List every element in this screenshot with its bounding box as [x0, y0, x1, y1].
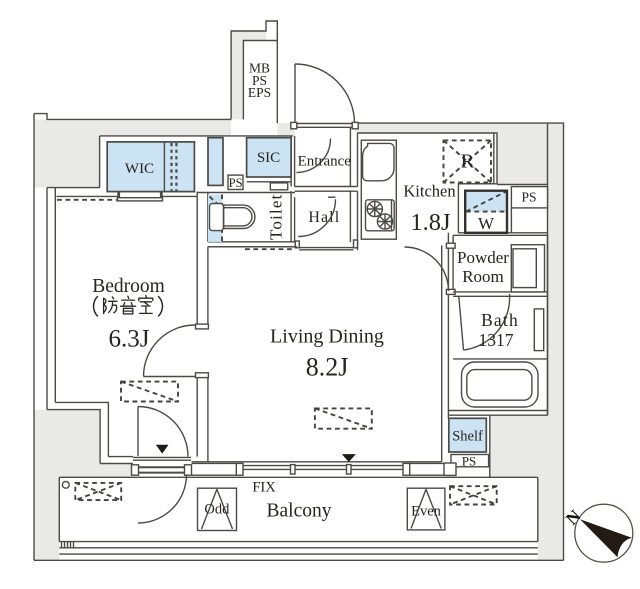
svg-text:Balcony: Balcony	[267, 501, 332, 522]
svg-text:Kitchen: Kitchen	[403, 182, 455, 201]
svg-text:Room: Room	[462, 267, 504, 286]
svg-text:Odd: Odd	[204, 502, 230, 518]
svg-text:SIC: SIC	[257, 150, 280, 166]
svg-text:Shelf: Shelf	[452, 429, 483, 445]
svg-text:PS: PS	[462, 453, 476, 468]
svg-text:1317: 1317	[479, 330, 514, 350]
svg-text:R: R	[461, 151, 475, 173]
svg-text:Hall: Hall	[308, 209, 340, 226]
svg-text:6.3J: 6.3J	[109, 326, 150, 353]
svg-text:Entrance: Entrance	[298, 154, 352, 170]
svg-text:8.2J: 8.2J	[306, 353, 349, 382]
svg-text:Bath: Bath	[481, 310, 519, 330]
svg-text:Even: Even	[411, 504, 442, 520]
svg-text:W: W	[478, 214, 495, 233]
svg-text:WIC: WIC	[125, 161, 154, 177]
svg-text:Living Dining: Living Dining	[270, 326, 384, 348]
svg-text:PS: PS	[229, 176, 243, 190]
svg-text:FIX: FIX	[252, 480, 276, 496]
svg-text:PS: PS	[521, 190, 536, 205]
svg-text:Powder: Powder	[457, 248, 509, 267]
svg-text:EPS: EPS	[248, 85, 271, 100]
svg-text:1.8J: 1.8J	[410, 209, 451, 236]
svg-text:Bedroom: Bedroom	[92, 276, 165, 297]
svg-text:Toilet: Toilet	[267, 193, 286, 240]
